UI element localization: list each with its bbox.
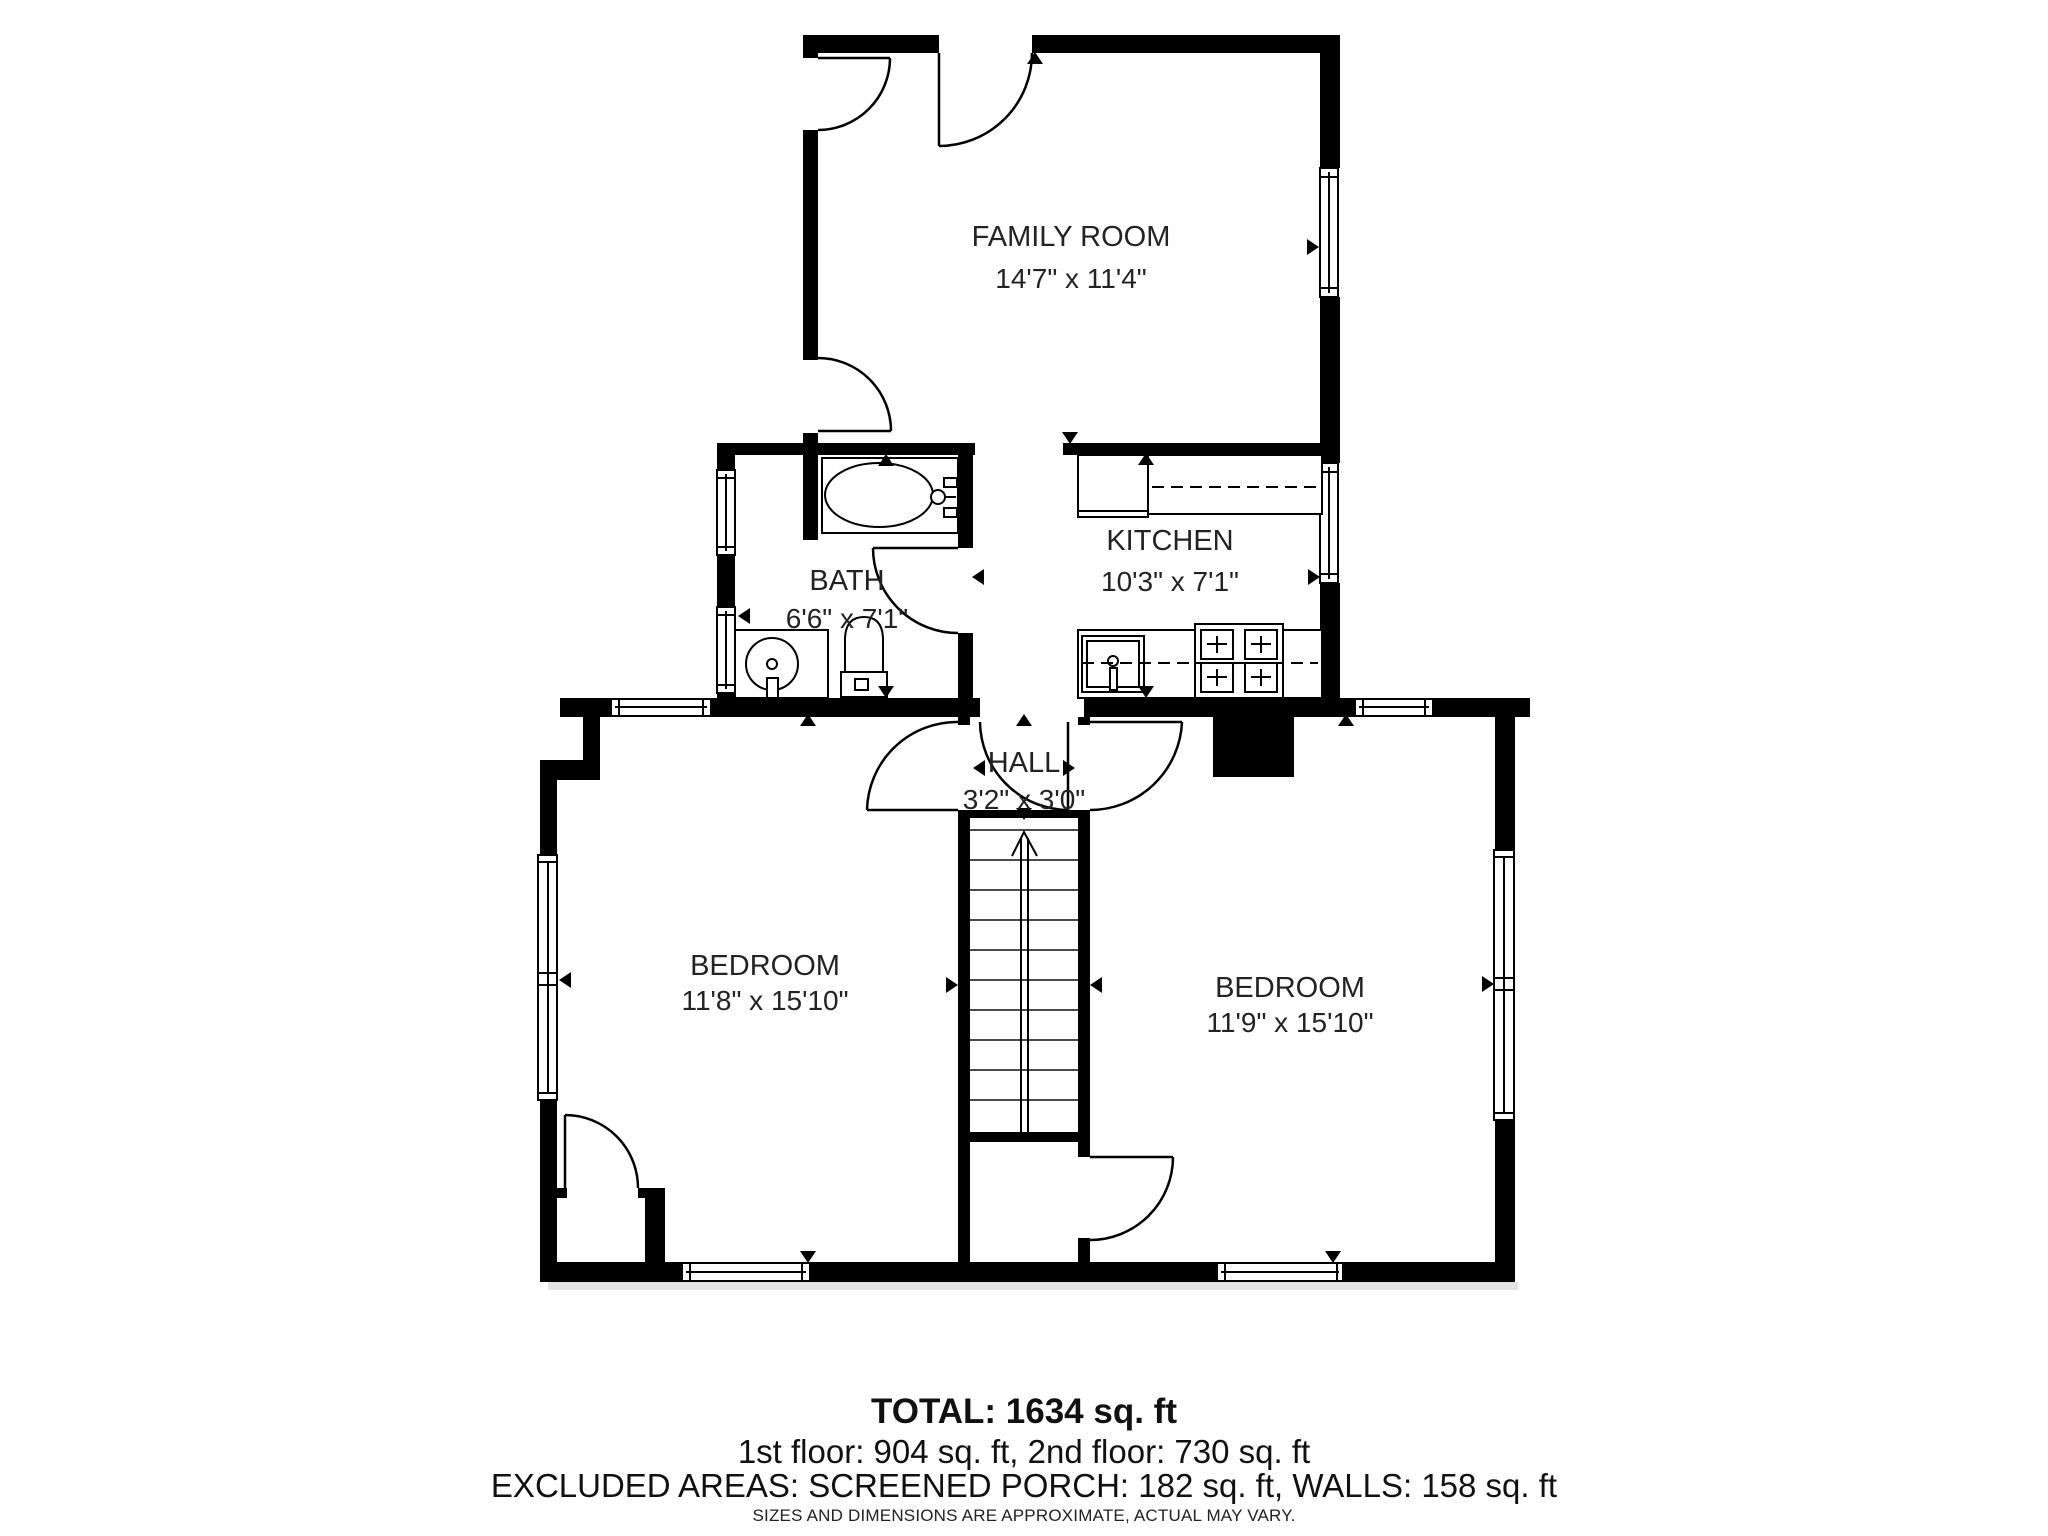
window-icon	[717, 470, 735, 555]
door-icon	[565, 1115, 638, 1188]
floor-plan-page: FAMILY ROOM 14'7" x 11'4" KITCHEN 10'3" …	[0, 0, 2048, 1536]
disclaimer-text: SIZES AND DIMENSIONS ARE APPROXIMATE, AC…	[0, 1506, 2048, 1526]
door-icon	[939, 53, 1032, 146]
door-icon	[818, 58, 890, 130]
arrow-right-icon	[1307, 239, 1319, 255]
door-icon	[867, 722, 958, 810]
refrigerator-icon	[1078, 455, 1148, 517]
bathroom-sink-icon	[735, 630, 828, 698]
arrow-up-icon	[1027, 52, 1043, 64]
bedroom-left-label: BEDROOM	[690, 950, 840, 982]
arrow-down-icon	[1062, 432, 1078, 444]
excluded-areas-text: EXCLUDED AREAS: SCREENED PORCH: 182 sq. …	[0, 1467, 2048, 1505]
door-icon	[818, 358, 891, 431]
staircase	[970, 830, 1078, 1132]
arrow-left-icon	[559, 972, 571, 988]
floor-areas-text: 1st floor: 904 sq. ft, 2nd floor: 730 sq…	[0, 1433, 2048, 1471]
kitchen-counter	[1148, 455, 1322, 514]
hall-label: HALL	[988, 747, 1061, 779]
plan-shadow	[548, 1282, 1518, 1290]
window-icon	[1494, 850, 1514, 1120]
kitchen-label: KITCHEN	[1106, 525, 1233, 557]
window-icon	[1355, 699, 1433, 716]
arrow-left-icon	[738, 608, 750, 624]
arrow-left-icon	[972, 569, 984, 585]
kitchen-dims: 10'3" x 7'1"	[1101, 566, 1239, 597]
hall-dims: 3'2" x 3'0"	[963, 784, 1085, 815]
door-icon	[1090, 722, 1182, 810]
arrow-right-icon	[1482, 976, 1494, 992]
window-icon	[717, 607, 735, 693]
window-icon	[682, 1263, 810, 1281]
door-icon	[1090, 1157, 1173, 1240]
arrow-left-icon	[1090, 977, 1102, 993]
bath-label: BATH	[809, 565, 884, 597]
chimney-block	[1213, 717, 1294, 777]
bedroom-right-label: BEDROOM	[1215, 972, 1365, 1004]
arrow-up-icon	[1016, 714, 1032, 726]
stairs-up-arrow-icon	[1012, 832, 1037, 856]
window-icon	[1217, 1263, 1343, 1281]
bedroom-right-dims: 11'9" x 15'10"	[1206, 1007, 1373, 1038]
arrow-right-icon	[1308, 569, 1320, 585]
bathtub-icon	[822, 458, 958, 533]
arrow-left-icon	[973, 760, 985, 776]
arrow-right-icon	[946, 977, 958, 993]
window-icon	[611, 699, 711, 716]
stove-icon	[1195, 624, 1283, 698]
floor-plan: FAMILY ROOM 14'7" x 11'4" KITCHEN 10'3" …	[0, 0, 2048, 1536]
window-icon	[538, 855, 557, 1100]
bath-dims: 6'6" x 7'1"	[786, 603, 908, 634]
total-area-text: TOTAL: 1634 sq. ft	[0, 1392, 2048, 1432]
family-room-label: FAMILY ROOM	[972, 221, 1171, 253]
window-icon	[1320, 168, 1338, 297]
family-room-dims: 14'7" x 11'4"	[995, 263, 1146, 294]
arrow-down-icon	[800, 1251, 816, 1263]
arrow-down-icon	[1325, 1251, 1341, 1263]
bedroom-left-dims: 11'8" x 15'10"	[681, 985, 848, 1016]
